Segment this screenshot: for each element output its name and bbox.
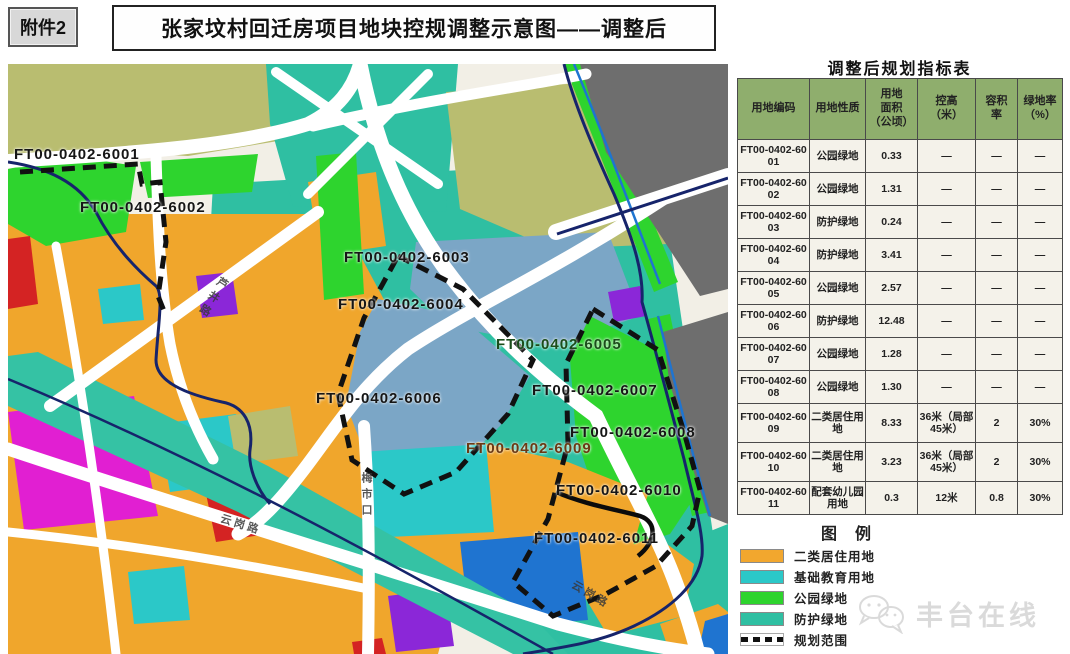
cell-far: — [976, 305, 1018, 338]
cell-code: FT00-0402-6003 [738, 206, 810, 239]
cell-use: 公园绿地 [810, 173, 866, 206]
table-row: FT00-0402-6005公园绿地2.57——— [738, 272, 1063, 305]
column-header-5: 绿地率（%） [1018, 79, 1063, 140]
plot-label-6008: FT00-0402-6008 [570, 424, 696, 441]
planning-indicator-table: 用地编码用地性质用地面积（公顷）控高（米）容积率绿地率（%） FT00-0402… [737, 78, 1063, 515]
plot-label-6009: FT00-0402-6009 [466, 440, 592, 457]
cell-green: — [1018, 272, 1063, 305]
cell-code: FT00-0402-6004 [738, 239, 810, 272]
attachment-badge: 附件2 [8, 7, 78, 47]
watermark: 丰台在线 [856, 592, 1040, 634]
cell-far: — [976, 338, 1018, 371]
planning-map: FT00-0402-6001 FT00-0402-6002 FT00-0402-… [8, 64, 728, 654]
cell-code: FT00-0402-6005 [738, 272, 810, 305]
screenshot-root: 附件2 张家坟村回迁房项目地块控规调整示意图——调整后 [0, 0, 1070, 654]
cell-use: 二类居住用地 [810, 443, 866, 482]
column-header-0: 用地编码 [738, 79, 810, 140]
table-row: FT00-0402-6010二类居住用地3.2336米（局部45米）230% [738, 443, 1063, 482]
legend-item: 基础教育用地 [740, 566, 970, 587]
cell-far: — [976, 206, 1018, 239]
legend-label: 防护绿地 [794, 609, 848, 628]
cell-use: 配套幼儿园用地 [810, 482, 866, 515]
watermark-text: 丰台在线 [916, 594, 1040, 633]
cell-area: 8.33 [866, 404, 918, 443]
cell-code: FT00-0402-6001 [738, 140, 810, 173]
cell-use: 防护绿地 [810, 305, 866, 338]
cell-code: FT00-0402-6007 [738, 338, 810, 371]
road-label-meishikou: 梅市口 [358, 472, 374, 520]
table-row: FT00-0402-6008公园绿地1.30——— [738, 371, 1063, 404]
legend-label: 二类居住用地 [794, 546, 875, 565]
column-header-4: 容积率 [976, 79, 1018, 140]
cell-use: 防护绿地 [810, 206, 866, 239]
plot-label-6010: FT00-0402-6010 [556, 482, 682, 499]
cell-green: 30% [1018, 482, 1063, 515]
table-row: FT00-0402-6011配套幼儿园用地0.312米0.830% [738, 482, 1063, 515]
cell-height: — [918, 338, 976, 371]
table-row: FT00-0402-6006防护绿地12.48——— [738, 305, 1063, 338]
cell-height: — [918, 206, 976, 239]
legend-item: 村界 [740, 650, 970, 654]
cell-height: — [918, 272, 976, 305]
cell-green: — [1018, 305, 1063, 338]
cell-use: 防护绿地 [810, 239, 866, 272]
table-row: FT00-0402-6007公园绿地1.28——— [738, 338, 1063, 371]
plot-label-6011: FT00-0402-6011 [534, 530, 659, 547]
cell-code: FT00-0402-6002 [738, 173, 810, 206]
legend-swatch [740, 570, 784, 584]
cell-code: FT00-0402-6006 [738, 305, 810, 338]
legend-title: 图例 [755, 520, 955, 544]
cell-far: — [976, 371, 1018, 404]
cell-green: — [1018, 371, 1063, 404]
cell-height: — [918, 239, 976, 272]
cell-far: — [976, 140, 1018, 173]
page-title: 张家坟村回迁房项目地块控规调整示意图——调整后 [112, 5, 716, 51]
column-header-2: 用地面积（公顷） [866, 79, 918, 140]
table-header: 用地编码用地性质用地面积（公顷）控高（米）容积率绿地率（%） [738, 79, 1063, 140]
cell-area: 1.30 [866, 371, 918, 404]
cell-far: 2 [976, 404, 1018, 443]
plot-label-6002: FT00-0402-6002 [80, 199, 206, 216]
cell-far: 0.8 [976, 482, 1018, 515]
cell-green: — [1018, 206, 1063, 239]
cell-far: 2 [976, 443, 1018, 482]
cell-use: 公园绿地 [810, 272, 866, 305]
cell-area: 3.41 [866, 239, 918, 272]
legend-swatch [740, 612, 784, 626]
cell-height: 36米（局部45米） [918, 404, 976, 443]
cell-green: — [1018, 173, 1063, 206]
cell-height: — [918, 140, 976, 173]
column-header-3: 控高（米） [918, 79, 976, 140]
plot-label-6005: FT00-0402-6005 [496, 336, 622, 353]
cell-area: 0.33 [866, 140, 918, 173]
cell-area: 1.28 [866, 338, 918, 371]
table-row: FT00-0402-6009二类居住用地8.3336米（局部45米）230% [738, 404, 1063, 443]
table-row: FT00-0402-6004防护绿地3.41——— [738, 239, 1063, 272]
cell-use: 公园绿地 [810, 371, 866, 404]
wechat-icon [856, 592, 908, 634]
legend-label: 公园绿地 [794, 588, 848, 607]
cell-code: FT00-0402-6008 [738, 371, 810, 404]
cell-green: 30% [1018, 404, 1063, 443]
cell-far: — [976, 173, 1018, 206]
table-title: 调整后规划指标表 [737, 55, 1062, 79]
cell-area: 1.31 [866, 173, 918, 206]
cell-use: 公园绿地 [810, 140, 866, 173]
cell-area: 0.3 [866, 482, 918, 515]
legend-item: 二类居住用地 [740, 545, 970, 566]
plot-label-6003: FT00-0402-6003 [344, 249, 470, 266]
cell-height: 12米 [918, 482, 976, 515]
cell-area: 0.24 [866, 206, 918, 239]
cell-code: FT00-0402-6009 [738, 404, 810, 443]
cell-use: 二类居住用地 [810, 404, 866, 443]
cell-area: 12.48 [866, 305, 918, 338]
legend-swatch [740, 591, 784, 605]
cell-far: — [976, 239, 1018, 272]
cell-green: 30% [1018, 443, 1063, 482]
cell-height: — [918, 371, 976, 404]
cell-green: — [1018, 239, 1063, 272]
cell-far: — [976, 272, 1018, 305]
table-row: FT00-0402-6001公园绿地0.33——— [738, 140, 1063, 173]
cell-code: FT00-0402-6011 [738, 482, 810, 515]
planning-scope-line-icon [740, 633, 784, 646]
table-row: FT00-0402-6002公园绿地1.31——— [738, 173, 1063, 206]
legend-label: 基础教育用地 [794, 567, 875, 586]
plot-label-6004: FT00-0402-6004 [338, 296, 464, 313]
table-row: FT00-0402-6003防护绿地0.24——— [738, 206, 1063, 239]
cell-use: 公园绿地 [810, 338, 866, 371]
cell-height: — [918, 173, 976, 206]
legend-swatch [740, 549, 784, 563]
cell-green: — [1018, 338, 1063, 371]
cell-code: FT00-0402-6010 [738, 443, 810, 482]
cell-green: — [1018, 140, 1063, 173]
cell-height: — [918, 305, 976, 338]
column-header-1: 用地性质 [810, 79, 866, 140]
plot-label-6006: FT00-0402-6006 [316, 390, 442, 407]
cell-area: 3.23 [866, 443, 918, 482]
cell-area: 2.57 [866, 272, 918, 305]
plot-label-6007: FT00-0402-6007 [532, 382, 658, 399]
plot-label-6001: FT00-0402-6001 [14, 146, 140, 163]
cell-height: 36米（局部45米） [918, 443, 976, 482]
legend-label: 规划范围 [794, 630, 848, 649]
